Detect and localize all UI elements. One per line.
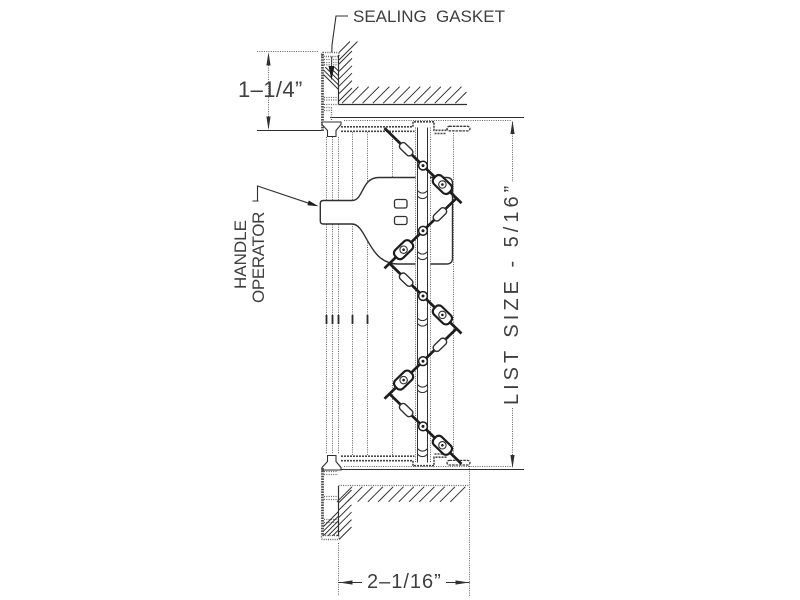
svg-text:2–1/16”: 2–1/16” [367,571,442,593]
svg-text:HANDLE: HANDLE [231,220,250,289]
svg-text:GASKET: GASKET [436,7,505,26]
svg-text:LIST SIZE - 5/16”: LIST SIZE - 5/16” [501,182,523,405]
svg-text:1–1/4”: 1–1/4” [238,77,303,102]
svg-text:OPERATOR: OPERATOR [249,212,268,303]
svg-text:SEALING: SEALING [353,7,427,26]
